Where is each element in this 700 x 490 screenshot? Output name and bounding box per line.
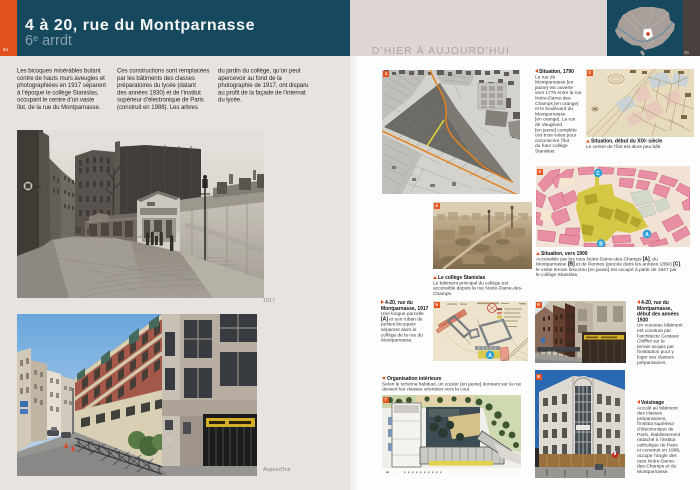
svg-text:C: C <box>596 171 600 177</box>
svg-text:A: A <box>645 232 649 238</box>
svg-text:A: A <box>488 353 492 359</box>
svg-text:B: B <box>599 241 603 247</box>
